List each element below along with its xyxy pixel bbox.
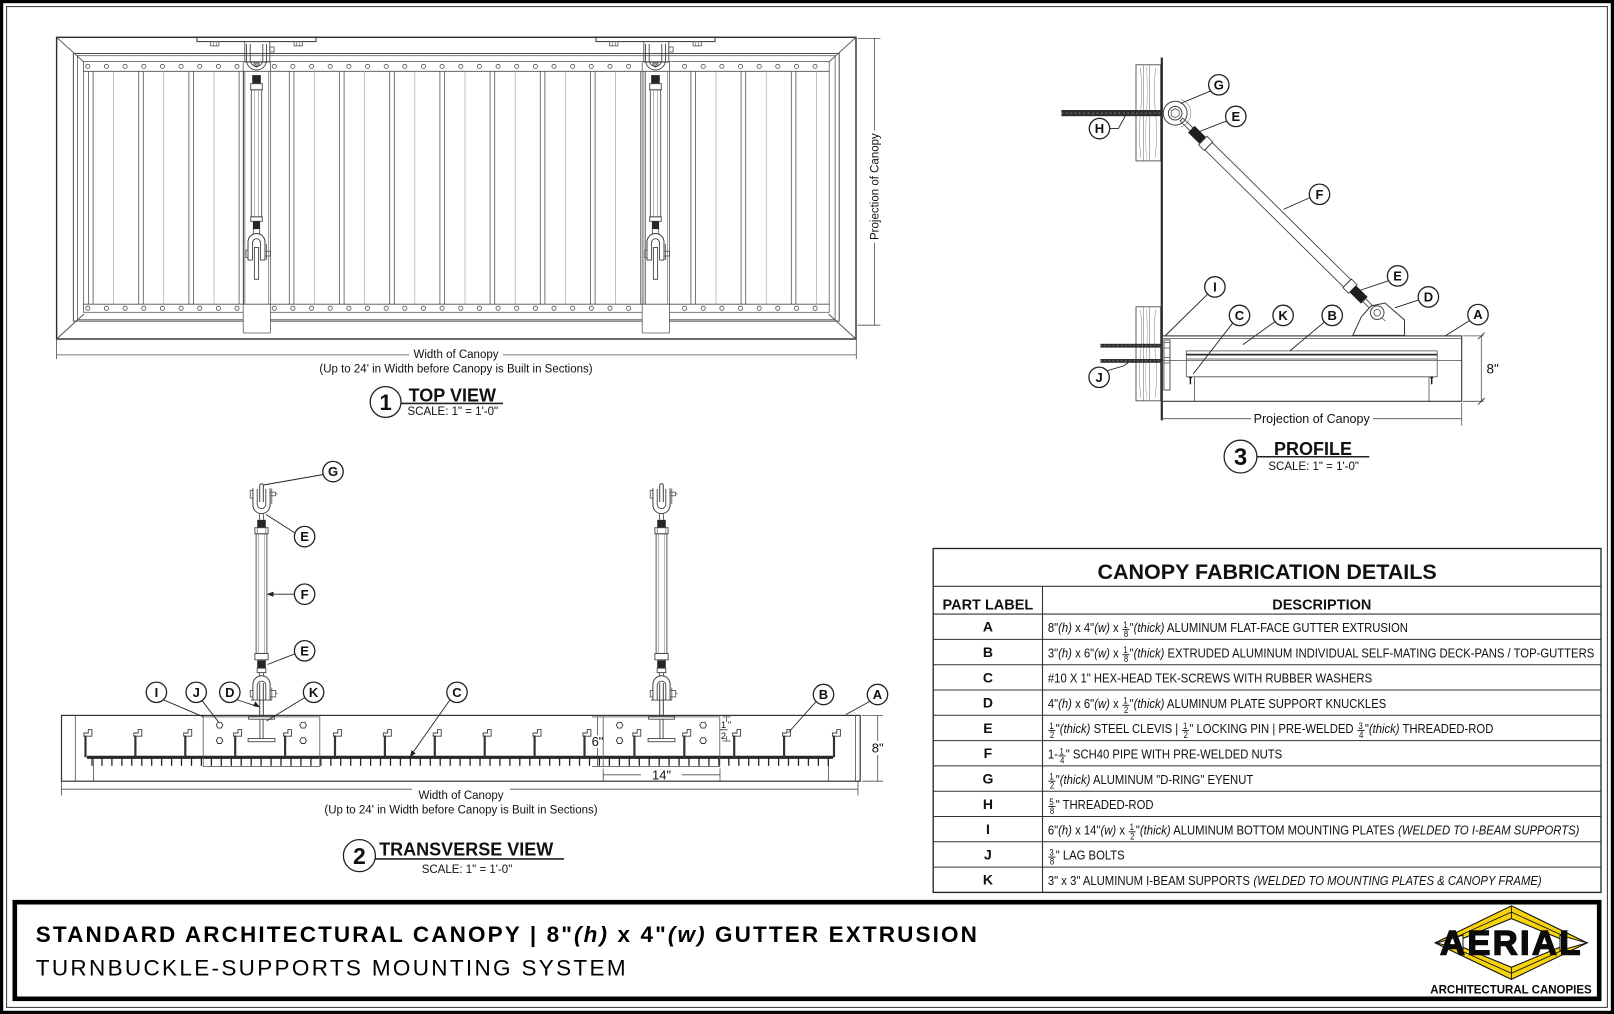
svg-text:8: 8 [1124, 628, 1129, 639]
svg-text:3": 3" [1048, 646, 1058, 661]
svg-text:6": 6" [592, 734, 604, 749]
svg-text:2: 2 [1184, 730, 1189, 741]
svg-text:(w): (w) [1094, 696, 1110, 711]
svg-text:J: J [984, 846, 992, 862]
svg-text:B: B [983, 644, 993, 660]
svg-text:8": 8" [1048, 620, 1058, 635]
svg-text:(w): (w) [668, 922, 707, 947]
svg-text:(h): (h) [1058, 696, 1072, 711]
svg-text:8: 8 [1124, 654, 1129, 665]
svg-text:A: A [983, 619, 993, 635]
svg-text:Projection of Canopy: Projection of Canopy [1254, 412, 1371, 426]
svg-text:x: x [1110, 646, 1122, 661]
svg-text:4": 4" [1048, 696, 1058, 711]
svg-text:C: C [1235, 308, 1245, 323]
svg-text:2: 2 [353, 843, 366, 869]
svg-text:E: E [300, 529, 309, 544]
svg-text:ALUMINUM BOTTOM MOUNTING PLATE: ALUMINUM BOTTOM MOUNTING PLATES [1171, 823, 1398, 838]
svg-text:(thick): (thick) [1060, 772, 1091, 787]
svg-text:8": 8" [1487, 362, 1500, 377]
svg-text:AERIAL: AERIAL [1440, 925, 1583, 963]
svg-text:K: K [1278, 308, 1288, 323]
svg-text:D: D [225, 685, 234, 700]
svg-text:E: E [1231, 109, 1240, 124]
svg-text:(w): (w) [1094, 646, 1110, 661]
svg-text:PART LABEL: PART LABEL [943, 597, 1034, 613]
svg-text:B: B [1328, 308, 1337, 323]
svg-text:E: E [1393, 269, 1402, 284]
svg-text:(WELDED TO MOUNTING PLATES & C: (WELDED TO MOUNTING PLATES & CANOPY FRAM… [1253, 873, 1541, 888]
svg-text:x 14": x 14" [1072, 823, 1100, 838]
svg-text:H: H [1095, 121, 1104, 136]
svg-text:2: 2 [1050, 730, 1055, 741]
svg-text:G: G [982, 771, 993, 787]
svg-text:A: A [873, 687, 883, 702]
svg-text:K: K [983, 872, 993, 888]
svg-text:2: 2 [1130, 831, 1135, 842]
svg-text:I: I [155, 685, 159, 700]
svg-text:ALUMINUM PLATE SUPPORT KNUCKLE: ALUMINUM PLATE SUPPORT KNUCKLES [1164, 696, 1386, 711]
svg-text:1-: 1- [1048, 747, 1058, 762]
svg-text:14": 14" [652, 767, 671, 782]
svg-text:": " [728, 720, 731, 731]
svg-text:(Up to 24' in Width before Can: (Up to 24' in Width before Canopy is Bui… [324, 804, 597, 816]
svg-text:#10 X 1" HEX-HEAD TEK-SCREWS W: #10 X 1" HEX-HEAD TEK-SCREWS WITH RUBBER… [1048, 671, 1372, 686]
svg-text:" LAG BOLTS: " LAG BOLTS [1056, 848, 1125, 863]
svg-text:3: 3 [1234, 444, 1247, 471]
svg-text:x 6": x 6" [1072, 646, 1094, 661]
svg-text:x 4": x 4" [1072, 620, 1094, 635]
svg-text:8: 8 [1050, 805, 1055, 816]
svg-text:(thick): (thick) [1134, 620, 1165, 635]
svg-text:(thick): (thick) [1134, 696, 1165, 711]
svg-text:TRANSVERSE VIEW: TRANSVERSE VIEW [379, 839, 553, 859]
svg-text:x: x [1110, 696, 1122, 711]
svg-text:(h): (h) [1058, 646, 1072, 661]
svg-text:E: E [983, 720, 992, 736]
svg-text:x 4": x 4" [609, 922, 668, 947]
svg-text:TOP VIEW: TOP VIEW [409, 385, 496, 405]
svg-text:Width of Canopy: Width of Canopy [418, 790, 503, 802]
svg-text:J: J [1095, 370, 1102, 385]
svg-text:H: H [983, 796, 993, 812]
svg-text:x: x [1110, 620, 1122, 635]
svg-text:2: 2 [1124, 704, 1129, 715]
svg-text:J: J [193, 685, 200, 700]
svg-text:6": 6" [1048, 823, 1058, 838]
svg-text:EXTRUDED ALUMINUM INDIVIDUAL S: EXTRUDED ALUMINUM INDIVIDUAL SELF-MATING… [1164, 646, 1594, 661]
svg-text:Projection of Canopy: Projection of Canopy [870, 133, 882, 240]
svg-text:(thick): (thick) [1369, 721, 1400, 736]
svg-text:(w): (w) [1094, 620, 1110, 635]
svg-text:(thick): (thick) [1134, 646, 1165, 661]
svg-text:3" x 3" ALUMINUM I-BEAM SUPPOR: 3" x 3" ALUMINUM I-BEAM SUPPORTS [1048, 873, 1253, 888]
svg-text:1: 1 [379, 390, 391, 415]
svg-text:(thick): (thick) [1140, 823, 1171, 838]
svg-text:8": 8" [872, 741, 884, 756]
svg-text:ALUMINUM FLAT-FACE GUTTER EXTR: ALUMINUM FLAT-FACE GUTTER EXTRUSION [1164, 620, 1408, 635]
svg-text:C: C [983, 669, 993, 685]
svg-text:SCALE: 1" = 1'-0": SCALE: 1" = 1'-0" [422, 864, 513, 876]
svg-text:C: C [452, 685, 462, 700]
svg-text:D: D [1424, 290, 1433, 305]
svg-text:ARCHITECTURAL CANOPIES: ARCHITECTURAL CANOPIES [1430, 985, 1592, 997]
svg-text:" LOCKING PIN | PRE-WELDED: " LOCKING PIN | PRE-WELDED [1189, 721, 1356, 736]
svg-text:A: A [1473, 307, 1483, 322]
svg-text:F: F [1316, 187, 1324, 202]
svg-text:4: 4 [1359, 730, 1364, 741]
svg-text:CANOPY FABRICATION DETAILS: CANOPY FABRICATION DETAILS [1097, 560, 1436, 584]
svg-text:(h): (h) [1058, 823, 1072, 838]
svg-text:THREADED-ROD: THREADED-ROD [1400, 721, 1494, 736]
svg-text:E: E [300, 643, 309, 658]
svg-text:(WELDED TO I-BEAM SUPPORTS): (WELDED TO I-BEAM SUPPORTS) [1398, 823, 1579, 838]
svg-text:SCALE: 1" = 1'-0": SCALE: 1" = 1'-0" [1268, 461, 1359, 473]
svg-text:D: D [983, 695, 993, 711]
svg-text:ALUMINUM "D-RING" EYENUT: ALUMINUM "D-RING" EYENUT [1090, 772, 1253, 787]
svg-text:SCALE: 1" = 1'-0": SCALE: 1" = 1'-0" [408, 406, 499, 418]
svg-text:1: 1 [721, 720, 726, 731]
svg-text:I: I [1213, 280, 1217, 295]
svg-text:G: G [328, 464, 338, 479]
svg-text:" THREADED-ROD: " THREADED-ROD [1056, 797, 1154, 812]
svg-text:(Up to 24' in Width before Can: (Up to 24' in Width before Canopy is Bui… [319, 364, 592, 376]
svg-text:B: B [819, 687, 828, 702]
svg-text:K: K [309, 685, 319, 700]
svg-text:(h): (h) [574, 922, 609, 947]
svg-text:" SCH40 PIPE WITH PRE-WELDED N: " SCH40 PIPE WITH PRE-WELDED NUTS [1066, 747, 1282, 762]
svg-text:4: 4 [1060, 755, 1065, 766]
svg-text:STANDARD ARCHITECTURAL CANOPY: STANDARD ARCHITECTURAL CANOPY | 8" [36, 922, 574, 947]
svg-text:8: 8 [1050, 856, 1055, 867]
svg-text:(w): (w) [1100, 823, 1116, 838]
svg-text:TURNBUCKLE-SUPPORTS MOUNTING S: TURNBUCKLE-SUPPORTS MOUNTING SYSTEM [36, 955, 628, 980]
svg-text:(h): (h) [1058, 620, 1072, 635]
svg-text:F: F [301, 587, 309, 602]
svg-text:F: F [984, 745, 993, 761]
svg-text:2: 2 [721, 731, 726, 742]
svg-text:2: 2 [1050, 780, 1055, 791]
svg-text:Width of Canopy: Width of Canopy [413, 349, 498, 361]
svg-text:DESCRIPTION: DESCRIPTION [1272, 597, 1371, 613]
svg-text:x 6": x 6" [1072, 696, 1094, 711]
svg-text:STEEL CLEVIS |: STEEL CLEVIS | [1090, 721, 1181, 736]
svg-text:GUTTER EXTRUSION: GUTTER EXTRUSION [707, 922, 979, 947]
svg-text:G: G [1214, 77, 1224, 92]
svg-text:(thick): (thick) [1060, 721, 1091, 736]
svg-text:x: x [1116, 823, 1128, 838]
svg-text:I: I [986, 821, 990, 837]
